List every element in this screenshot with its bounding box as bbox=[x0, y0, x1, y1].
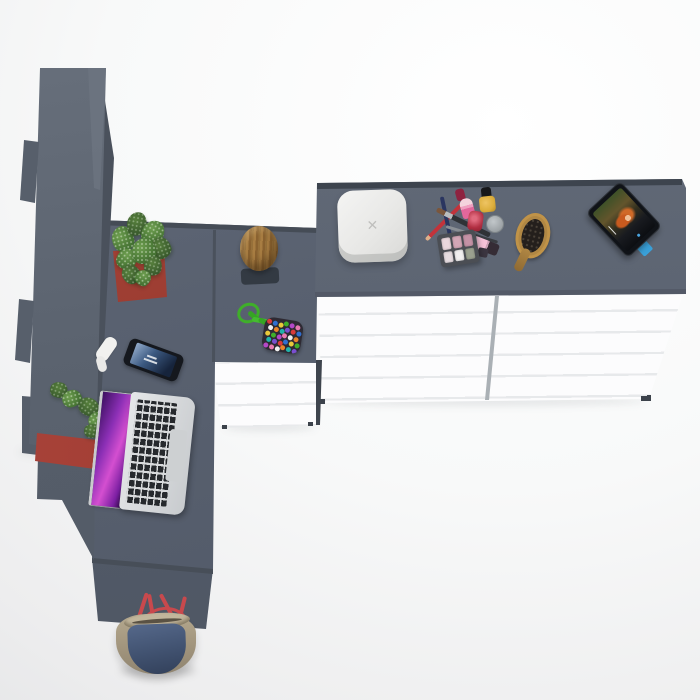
bead bbox=[273, 327, 279, 333]
bead bbox=[276, 334, 282, 340]
eyeshadow-pan bbox=[463, 234, 474, 247]
bead-pouch bbox=[261, 316, 305, 355]
eyeshadow-pan bbox=[465, 247, 476, 260]
bead bbox=[274, 346, 280, 352]
bead bbox=[272, 320, 278, 326]
eyeshadow-palette bbox=[436, 229, 480, 268]
corner-unit-foot bbox=[308, 422, 313, 426]
bead bbox=[293, 337, 299, 343]
movie-subtitle-line bbox=[608, 226, 617, 235]
bead bbox=[268, 325, 274, 331]
bead bbox=[295, 325, 301, 331]
bead bbox=[296, 331, 302, 337]
laptop bbox=[88, 388, 196, 515]
bead bbox=[263, 342, 269, 348]
wooden-log-stool bbox=[240, 226, 278, 271]
corner-unit-foot bbox=[222, 425, 227, 429]
eyeshadow-pan bbox=[443, 250, 454, 263]
nail-polish-bottle bbox=[479, 195, 497, 213]
bead bbox=[271, 338, 277, 344]
hairbrush-handle bbox=[513, 247, 532, 273]
laptop-base bbox=[119, 392, 196, 516]
tablet-indicator-dot bbox=[637, 233, 641, 237]
red-nail-polish bbox=[467, 210, 485, 232]
yellow-nail-polish bbox=[478, 186, 497, 213]
bead bbox=[266, 337, 272, 343]
eyeshadow-pan bbox=[441, 237, 452, 250]
bead bbox=[278, 322, 284, 328]
bead bbox=[270, 332, 276, 338]
bead bbox=[265, 330, 271, 336]
bead bbox=[269, 344, 275, 350]
eyeshadow-pan bbox=[454, 249, 465, 262]
jewelry-box-mark: ✕ bbox=[366, 218, 378, 234]
dresser-foot bbox=[647, 395, 651, 401]
bead bbox=[267, 318, 273, 324]
room-render: ✕ bbox=[0, 0, 700, 700]
cream-jar bbox=[486, 215, 504, 233]
bead bbox=[294, 343, 300, 349]
jewelry-box: ✕ bbox=[337, 189, 408, 263]
eyeshadow-pan bbox=[452, 235, 463, 248]
